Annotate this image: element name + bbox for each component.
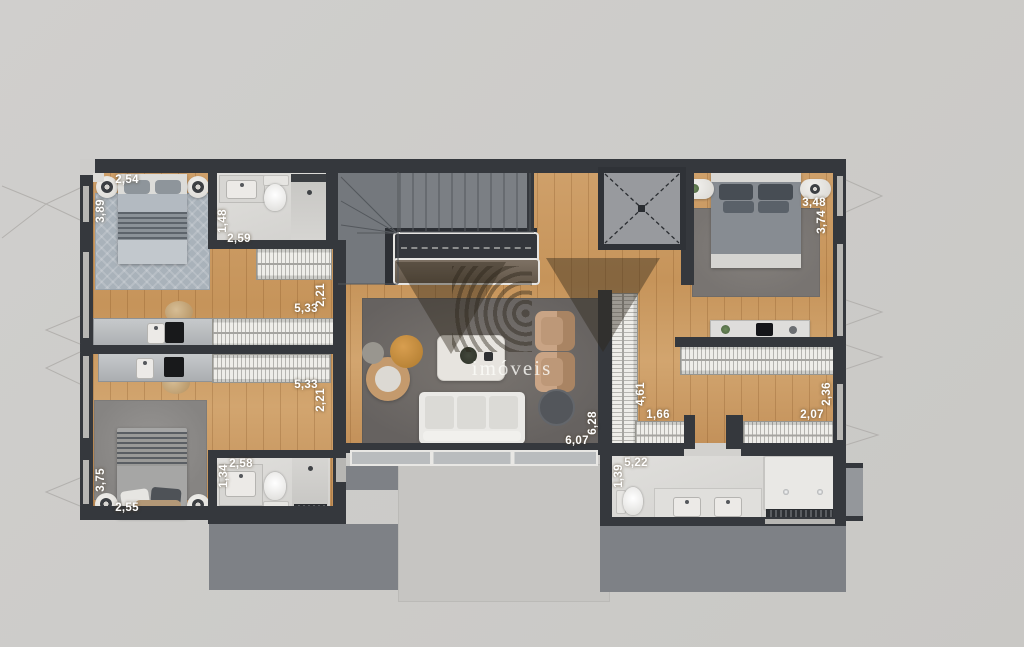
wall-bath-bl-bottom (208, 512, 346, 524)
lamp-icon (810, 184, 820, 194)
wall-bath-tl-left (208, 172, 217, 249)
bed-foot (118, 240, 187, 264)
terrace-right (600, 525, 846, 592)
sofa-seat (425, 396, 454, 429)
side-table-dark (538, 389, 575, 426)
window (83, 186, 89, 222)
wall-closet-stub-a (684, 415, 695, 449)
wall-bath-tl-right (326, 172, 338, 249)
watermark-text: imóveis (442, 356, 582, 381)
dim-closet-left-width: 1,66 (640, 409, 676, 421)
window (837, 244, 843, 336)
window (837, 176, 843, 216)
floorplan-canvas: imóveis 2,54 3,89 1,48 2,59 5,33 2,21 5,… (0, 0, 1024, 647)
sofa-seat (489, 396, 518, 429)
elevator-shaft (598, 167, 686, 250)
sofa-seat (457, 396, 486, 429)
wall-mbath-top-right (741, 443, 846, 456)
lamp-icon (192, 181, 204, 193)
wardrobe-top-left-unit (212, 318, 335, 348)
toilet-bowl (623, 487, 643, 515)
shower-head-icon (308, 466, 313, 471)
dim-bedroom-bl-depth: 3,75 (95, 462, 107, 498)
vanity-top-left (219, 175, 265, 203)
terrace-left (209, 524, 398, 590)
wall-top (80, 159, 846, 173)
vanity-master (654, 488, 762, 518)
wall-closet-north (675, 337, 846, 347)
wall-closet-stub-b (726, 415, 743, 449)
bed-top-left (118, 174, 187, 264)
sofa-back (423, 431, 521, 441)
toilet-bowl (264, 184, 286, 211)
plant-icon (721, 325, 730, 334)
dim-bedroom-tl-depth: 3,89 (95, 193, 107, 229)
armchair (535, 311, 575, 351)
tv-screen-line (401, 247, 531, 249)
pillow (719, 184, 753, 200)
armchair-cushion (541, 317, 563, 345)
wardrobe-closet-top (680, 345, 836, 375)
toilet-bowl (264, 472, 286, 500)
wall-bath-bl-top (208, 450, 346, 458)
window-box-right (843, 463, 863, 521)
roof-terrace-center (398, 464, 610, 602)
window (83, 356, 89, 438)
bathroom-sink (673, 497, 701, 517)
sliding-glass-door (350, 450, 598, 466)
toilet (263, 175, 289, 213)
pillow (723, 201, 754, 213)
cooktop (164, 357, 184, 377)
dim-bedroom-tr-depth: 3,74 (816, 204, 828, 240)
dim-closet-right-width: 2,07 (794, 409, 830, 421)
dim-bath-tl-width: 2,59 (221, 233, 257, 245)
wall-mbath-top-left (612, 443, 684, 456)
side-table-gray (362, 342, 384, 364)
wall-stair-right (527, 172, 534, 232)
decor-icon (789, 326, 797, 334)
balcony-small (342, 466, 398, 490)
dim-bath-master-depth: 1,39 (613, 458, 625, 494)
chair-cushion (375, 366, 401, 392)
bathroom-sink (226, 180, 257, 199)
watermark-logo-stripes (452, 266, 532, 352)
dim-living-depth: 6,28 (587, 405, 599, 441)
faucet-icon (817, 489, 823, 495)
dim-unit-bl-depth: 2,21 (315, 382, 327, 418)
bed-throw (117, 432, 187, 466)
window (837, 384, 843, 440)
tv-icon (756, 323, 773, 336)
wall-units-divider (80, 345, 346, 354)
dim-closet-right-depth: 2,36 (821, 376, 833, 412)
cooktop (165, 322, 184, 343)
dim-bath-bl-depth: 1,34 (218, 458, 230, 494)
dim-bedroom-tl-width: 2,54 (109, 174, 145, 186)
window (83, 460, 89, 504)
shower-bottom-left (292, 458, 328, 512)
kitchen-sink (147, 323, 165, 344)
wall-mbath-left (600, 443, 612, 525)
balcony-door (336, 458, 346, 482)
sofa (419, 392, 525, 444)
nightstand (187, 176, 209, 198)
pillow (758, 184, 793, 200)
pillow (758, 201, 789, 213)
dim-closet-left-depth: 4,61 (635, 376, 647, 412)
window (83, 252, 89, 338)
bed-throw (118, 212, 187, 240)
pillow (155, 180, 181, 194)
corner-pillar (93, 173, 104, 182)
nightstand (800, 179, 831, 199)
headboard (711, 172, 801, 182)
wall-bath-bl-left (208, 450, 217, 520)
faucet-icon (783, 489, 789, 495)
dim-bedroom-bl-width: 2,55 (109, 502, 145, 514)
wardrobe-under-bath (256, 248, 332, 280)
bed-foot-bench (711, 254, 801, 268)
shower-top-left (291, 174, 327, 240)
dim-unit-tl-depth: 2,21 (315, 277, 327, 313)
window (765, 519, 835, 524)
bathroom-sink (714, 497, 742, 517)
kitchen-counter-bottom-left (98, 353, 215, 382)
pouf (390, 335, 423, 368)
bathtub (763, 455, 840, 511)
shower-wall (291, 174, 327, 182)
kitchen-counter-top-left (93, 318, 215, 348)
kitchen-sink (136, 358, 154, 379)
shower-head-icon (307, 190, 312, 195)
bed-master (711, 172, 801, 268)
